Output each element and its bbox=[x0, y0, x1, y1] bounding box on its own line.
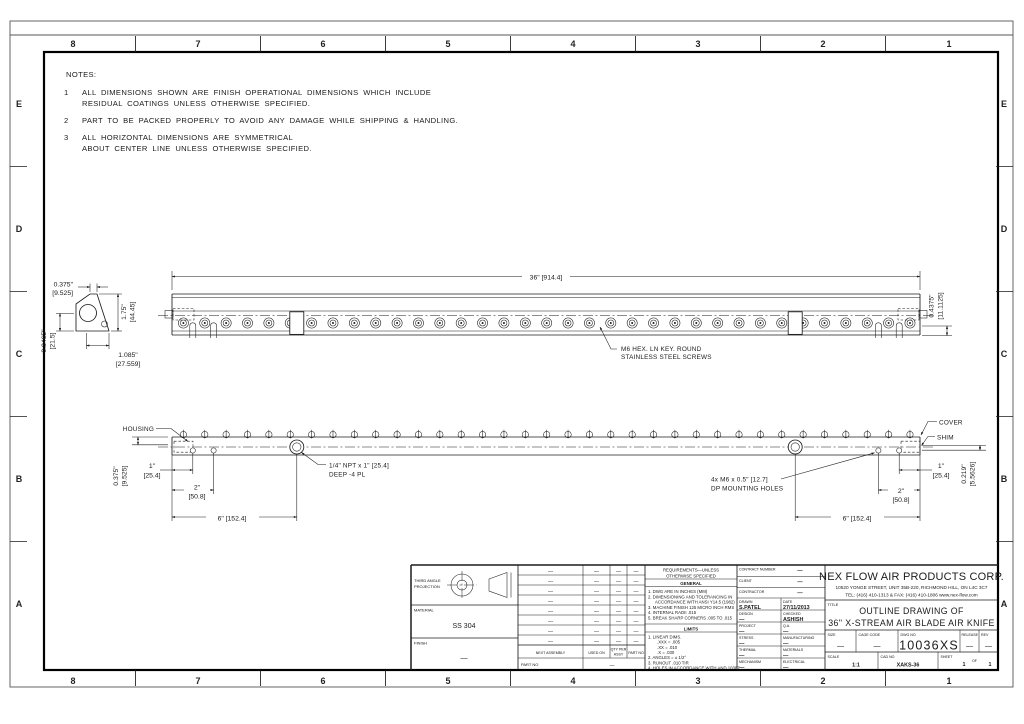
signoff-label: PROJECT bbox=[739, 624, 757, 628]
npt-callout-line1: 1/4" NPT x 1" [25.4] bbox=[329, 463, 389, 470]
parts-cell: — bbox=[548, 599, 553, 605]
scale-value: 1:1 bbox=[852, 663, 860, 669]
client-value: — bbox=[797, 580, 803, 586]
sheet-label: SHEET bbox=[941, 655, 954, 659]
sheet-value: 1 bbox=[963, 662, 966, 668]
end-profile-outline bbox=[76, 294, 109, 331]
zone-column-label: 6 bbox=[320, 39, 325, 49]
dim-height-mm: [11.1125] bbox=[938, 292, 945, 319]
mounting-callout-line2: DP MOUNTING HOLES bbox=[711, 486, 783, 493]
parts-header-assy: ASSY bbox=[614, 653, 624, 657]
contractor-label: CONTRACTOR bbox=[739, 590, 765, 594]
signoff-value: — bbox=[783, 665, 789, 671]
signoff-value: — bbox=[739, 665, 745, 671]
company-name: NEX FLOW AIR PRODUCTS CORP. bbox=[819, 571, 1004, 583]
front-view: 36" [914.4] 0.4375" [11.1125] M6 HEX. LN… bbox=[158, 271, 952, 362]
mounting-hole bbox=[876, 448, 881, 453]
screw-icon bbox=[606, 318, 616, 328]
signoff-value: — bbox=[783, 641, 789, 647]
screw-icon bbox=[905, 318, 915, 328]
npt-plug bbox=[290, 312, 304, 335]
dim-bottom-left-in: 0.375" bbox=[113, 466, 120, 486]
parts-cell: — bbox=[616, 639, 621, 645]
bottom-view: HOUSING COVER SHIM 0.375" [9.525] 0.219"… bbox=[113, 420, 986, 523]
zone-row-label: E bbox=[16, 99, 22, 109]
zone-column-label: 6 bbox=[320, 676, 325, 686]
parts-cell: — bbox=[634, 629, 639, 635]
end-profile-bore bbox=[80, 305, 97, 322]
dim-end-right-in: 1.75" bbox=[121, 304, 128, 320]
screw-icon bbox=[777, 318, 787, 328]
dim-end-top-mm: [9.525] bbox=[52, 290, 73, 297]
dim-1mm-left: [25.4] bbox=[143, 473, 160, 480]
parts-header-qty-per: QTY PER bbox=[611, 648, 627, 652]
material-value: SS 304 bbox=[453, 623, 476, 630]
zone-column-label: 2 bbox=[820, 676, 825, 686]
screw-icon bbox=[819, 318, 829, 328]
cad-no-label: CAD NO bbox=[881, 655, 895, 659]
zone-column-label: 8 bbox=[70, 39, 75, 49]
drawing-title-line1: OUTLINE DRAWING OF bbox=[859, 606, 964, 616]
dim-1in-right: 1" bbox=[938, 463, 945, 470]
note-text: ALL HORIZONTAL DIMENSIONS ARE SYMMETRICA… bbox=[82, 133, 293, 142]
parts-cell: — bbox=[548, 629, 553, 635]
dim-bottom-right-in: 0.219" bbox=[961, 464, 968, 484]
parts-cell: — bbox=[634, 619, 639, 625]
parts-cell: — bbox=[634, 599, 639, 605]
signoff-value: — bbox=[739, 617, 745, 623]
screw-icon bbox=[755, 318, 765, 328]
contractor-value: — bbox=[797, 591, 803, 597]
size-label: SIZE bbox=[828, 633, 837, 637]
dim-bottom-right-mm: [5.5626] bbox=[970, 462, 977, 487]
signoff-label: MANUFACTURING bbox=[783, 636, 815, 640]
screw-icon bbox=[435, 318, 445, 328]
parts-cell: — bbox=[594, 609, 599, 615]
signoff-label: DATE bbox=[783, 600, 793, 604]
signoff-label: STRESS bbox=[739, 636, 754, 640]
dim-2in-left: 2" bbox=[194, 485, 201, 492]
parts-cell: — bbox=[548, 589, 553, 595]
cage-code-label: CAGE CODE bbox=[859, 633, 881, 637]
npt-plug bbox=[788, 312, 802, 335]
parts-cell: — bbox=[548, 639, 553, 645]
finish-label: FINISH bbox=[414, 641, 427, 646]
zone-row-label: A bbox=[1001, 599, 1008, 609]
dim-end-left-in: 0.8465" bbox=[41, 329, 48, 353]
screw-icon bbox=[328, 318, 338, 328]
parts-cell: — bbox=[616, 609, 621, 615]
finish-value: — bbox=[461, 655, 468, 662]
parts-cell: — bbox=[634, 579, 639, 585]
screw-icon bbox=[884, 318, 894, 328]
parts-cell: — bbox=[616, 619, 621, 625]
dim-2mm-left: [50.8] bbox=[188, 494, 205, 501]
screw-icon bbox=[349, 318, 359, 328]
mounting-stud bbox=[211, 323, 217, 338]
material-label: MATERIAL bbox=[414, 608, 434, 613]
screw-icon bbox=[371, 318, 381, 328]
part-no-value: — bbox=[610, 663, 615, 669]
zone-row-label: E bbox=[1001, 99, 1007, 109]
dim-overall-length: 36" [914.4] bbox=[530, 274, 563, 281]
client-label: CLIENT bbox=[739, 579, 753, 583]
signoff-label: ELECTRICAL bbox=[783, 660, 805, 664]
parts-header-part-no: PART NO bbox=[628, 651, 644, 655]
parts-cell: — bbox=[548, 569, 553, 575]
dim-height-in: 0.4375" bbox=[929, 294, 936, 318]
zone-column-label: 3 bbox=[695, 39, 700, 49]
part-no-label: PART NO bbox=[521, 662, 538, 667]
note-number: 2 bbox=[64, 116, 69, 125]
parts-cell: — bbox=[634, 639, 639, 645]
zone-column-label: 5 bbox=[445, 39, 450, 49]
parts-cell: — bbox=[616, 629, 621, 635]
note-text: ABOUT CENTER LINE UNLESS OTHERWISE SPECI… bbox=[82, 144, 312, 153]
parts-cell: — bbox=[616, 589, 621, 595]
zone-column-label: 5 bbox=[445, 676, 450, 686]
screw-callout-line2: STAINLESS STEEL SCREWS bbox=[621, 354, 712, 361]
zone-row-label: A bbox=[16, 599, 23, 609]
rev-value: — bbox=[985, 643, 992, 650]
parts-cell: — bbox=[634, 589, 639, 595]
contract-label: CONTRACT NUMBER bbox=[739, 568, 776, 572]
screw-icon bbox=[691, 318, 701, 328]
zone-row-label: D bbox=[1001, 224, 1008, 234]
parts-table: ———————————————————————————————— bbox=[518, 569, 645, 646]
signoff-value: ASHISH bbox=[783, 617, 803, 623]
parts-header-used-on: USED ON bbox=[588, 651, 605, 655]
zone-column-label: 4 bbox=[570, 39, 575, 49]
screw-icon bbox=[713, 318, 723, 328]
title-label: TITLE bbox=[828, 602, 839, 607]
requirements-general-title: GENERAL bbox=[680, 581, 702, 586]
screw-icon bbox=[242, 318, 252, 328]
sheet-of-label: OF bbox=[972, 659, 978, 663]
scale-label: SCALE bbox=[828, 655, 840, 659]
dwg-no-value: 10036XS bbox=[899, 639, 959, 653]
signoff-label: MECHANISM bbox=[739, 660, 761, 664]
mounting-callout-line1: 4x M6 x 0.5" [12.7] bbox=[711, 477, 768, 484]
screw-icon bbox=[392, 318, 402, 328]
label-cover: COVER bbox=[939, 420, 963, 427]
end-profile-view: 0.375" [9.525] 1.75" [44.45] 0.8465" [21… bbox=[41, 282, 140, 369]
signoff-value: — bbox=[739, 629, 745, 635]
screw-icon bbox=[178, 318, 188, 328]
notes-title: NOTES: bbox=[66, 70, 96, 79]
screw-row bbox=[178, 318, 915, 328]
parts-cell: — bbox=[634, 609, 639, 615]
dim-end-top-in: 0.375" bbox=[54, 282, 74, 289]
npt-port bbox=[788, 440, 802, 454]
screw-icon bbox=[542, 318, 552, 328]
parts-cell: — bbox=[616, 579, 621, 585]
signoff-label: MATERIALS bbox=[783, 648, 804, 652]
cage-code-value: — bbox=[874, 643, 881, 650]
requirement-general-item: 1. DWG ARE IN INCHES (MM) bbox=[648, 589, 708, 594]
mounting-stud bbox=[190, 323, 196, 338]
screw-icon bbox=[734, 318, 744, 328]
screw-icon bbox=[200, 318, 210, 328]
parts-cell: — bbox=[594, 579, 599, 585]
zone-column-label: 4 bbox=[570, 676, 575, 686]
screw-icon bbox=[584, 318, 594, 328]
requirements-limits-title: LIMITS bbox=[684, 626, 698, 631]
dim-end-bottom-mm: [27.559] bbox=[116, 361, 141, 368]
cad-no-value: XAKS-36 bbox=[897, 663, 920, 669]
signoff-label: Q.A. bbox=[783, 624, 790, 628]
release-label: RELEASE bbox=[962, 633, 979, 637]
parts-cell: — bbox=[634, 569, 639, 575]
requirement-general-item: 3. MACHINE FINISH 125 MICRO INCH RMS bbox=[648, 605, 734, 610]
dim-end-right-mm: [44.45] bbox=[130, 302, 137, 323]
zone-column-label: 3 bbox=[695, 676, 700, 686]
screw-icon bbox=[264, 318, 274, 328]
zone-row-label: C bbox=[1001, 349, 1008, 359]
notes-list: 1ALL DIMENSIONS SHOWN ARE FINISH OPERATI… bbox=[64, 88, 458, 153]
note-text: PART TO BE PACKED PROPERLY TO AVOID ANY … bbox=[82, 116, 458, 125]
engineering-drawing: 8877665544332211EEDDCCBBAA NOTES: 1ALL D… bbox=[0, 0, 1024, 724]
projection-label-line1: THIRD ANGLE bbox=[414, 578, 441, 583]
dim-6-left: 6" [152.4] bbox=[218, 515, 247, 522]
dim-2mm-right: [50.8] bbox=[892, 497, 909, 504]
zone-row-label: B bbox=[16, 474, 23, 484]
signoff-label: CHECKED bbox=[783, 612, 801, 616]
parts-cell: — bbox=[616, 569, 621, 575]
signoff-value: S.PATEL bbox=[739, 605, 762, 611]
contract-value: — bbox=[797, 568, 803, 574]
mounting-hole bbox=[897, 448, 902, 453]
size-value: — bbox=[837, 643, 844, 650]
screw-icon bbox=[862, 318, 872, 328]
zone-column-label: 2 bbox=[820, 39, 825, 49]
zone-row-label: B bbox=[1001, 474, 1008, 484]
parts-cell: — bbox=[616, 599, 621, 605]
note-text: RESIDUAL COATINGS UNLESS OTHERWISE SPECI… bbox=[82, 99, 310, 108]
screw-icon bbox=[520, 318, 530, 328]
dim-1mm-right: [25.4] bbox=[932, 473, 949, 480]
company-address-line1: 10520 YONGE STREET, UNIT 35B-220, RICHMO… bbox=[836, 585, 988, 590]
mounting-stud bbox=[896, 323, 902, 338]
mounting-hole bbox=[190, 448, 195, 453]
parts-header-next-assembly: NEXT ASSEMBLY bbox=[536, 651, 566, 655]
dim-2in-right: 2" bbox=[898, 488, 905, 495]
zone-column-label: 1 bbox=[946, 676, 951, 686]
dim-6-right: 6" [152.4] bbox=[843, 515, 872, 522]
npt-port bbox=[290, 440, 304, 454]
parts-cell: — bbox=[548, 579, 553, 585]
requirements-header-line2: OTHERWISE SPECIFIED bbox=[666, 574, 716, 579]
label-housing: HOUSING bbox=[123, 426, 154, 433]
signoff-value: — bbox=[739, 653, 745, 659]
screw-icon bbox=[563, 318, 573, 328]
dwg-no-label: DWG NO bbox=[901, 633, 916, 637]
dim-1in-left: 1" bbox=[149, 463, 156, 470]
requirement-general-item: 5. BREAK SHARP CORNERS .005 TO .015 bbox=[648, 616, 733, 621]
parts-cell: — bbox=[548, 609, 553, 615]
requirements-header-line1: REQUIREMENTS—UNLESS bbox=[663, 568, 719, 573]
screw-icon bbox=[648, 318, 658, 328]
screw-icon bbox=[841, 318, 851, 328]
drawing-title-line2: 36" X-STREAM AIR BLADE AIR KNIFE bbox=[828, 618, 995, 628]
dim-bottom-left-mm: [9.525] bbox=[122, 466, 129, 487]
parts-cell: — bbox=[594, 619, 599, 625]
screw-icon bbox=[413, 318, 423, 328]
signoff-label: DESIGN bbox=[739, 612, 753, 616]
zone-column-label: 1 bbox=[946, 39, 951, 49]
rev-label: REV bbox=[981, 633, 989, 637]
screw-icon bbox=[627, 318, 637, 328]
sheet-of-value: 1 bbox=[989, 662, 992, 668]
signoff-value: — bbox=[783, 629, 789, 635]
note-text: ALL DIMENSIONS SHOWN ARE FINISH OPERATIO… bbox=[82, 88, 431, 97]
release-value: — bbox=[966, 643, 973, 650]
signoff-value: — bbox=[783, 653, 789, 659]
mounting-hole bbox=[211, 448, 216, 453]
zone-row-label: D bbox=[16, 224, 23, 234]
screw-icon bbox=[477, 318, 487, 328]
parts-cell: — bbox=[594, 639, 599, 645]
requirement-general-item: 2. DIMENSIONING AND TOLERANCING IN bbox=[648, 594, 732, 599]
parts-cell: — bbox=[594, 569, 599, 575]
requirement-limit-item: 4. HOLES IN ACCORDANCE WITH AND 10387 bbox=[648, 665, 740, 670]
screw-icon bbox=[221, 318, 231, 328]
dim-end-bottom-in: 1.085" bbox=[118, 352, 138, 359]
screw-icon bbox=[499, 318, 509, 328]
zone-column-label: 7 bbox=[195, 39, 200, 49]
requirement-general-item: 4. INTERNAL RADII .015 bbox=[648, 610, 697, 615]
screw-icon bbox=[456, 318, 466, 328]
note-number: 1 bbox=[64, 88, 69, 97]
screw-callout-line1: M6 HEX. LN KEY. ROUND bbox=[621, 346, 702, 353]
third-angle-projection-icon bbox=[447, 571, 511, 599]
signoff-label: DRAWN bbox=[739, 600, 753, 604]
signoff-label: THERMAL bbox=[739, 648, 756, 652]
label-shim: SHIM bbox=[937, 435, 954, 442]
npt-callout-line2: DEEP -4 PL bbox=[329, 472, 366, 479]
parts-cell: — bbox=[594, 629, 599, 635]
note-number: 3 bbox=[64, 133, 69, 142]
signoff-value: 27/11/2013 bbox=[783, 605, 810, 611]
title-block: THIRD ANGLE PROJECTION MATERIAL SS 304 F… bbox=[411, 565, 1004, 671]
company-address-line2: TEL: (416) 410-1313 & FAX: (416) 410-180… bbox=[845, 593, 977, 598]
requirement-general-item: ACCORDANCE WITH ANSI Y14.5 (1982) bbox=[655, 600, 735, 605]
parts-cell: — bbox=[594, 599, 599, 605]
dim-end-left-mm: [21.5] bbox=[50, 332, 57, 349]
parts-cell: — bbox=[548, 619, 553, 625]
screw-icon bbox=[307, 318, 317, 328]
drawing-sheet: 8877665544332211EEDDCCBBAA NOTES: 1ALL D… bbox=[0, 0, 1024, 724]
zone-column-label: 8 bbox=[70, 676, 75, 686]
parts-cell: — bbox=[594, 589, 599, 595]
zone-column-label: 7 bbox=[195, 676, 200, 686]
zone-row-label: C bbox=[16, 349, 23, 359]
notes-block: NOTES: 1ALL DIMENSIONS SHOWN ARE FINISH … bbox=[64, 70, 458, 153]
screw-icon bbox=[670, 318, 680, 328]
mounting-stud bbox=[875, 323, 881, 338]
shim-hidden-outline bbox=[901, 441, 920, 452]
signoff-value: — bbox=[739, 641, 745, 647]
projection-label-line2: PROJECTION bbox=[414, 584, 440, 589]
